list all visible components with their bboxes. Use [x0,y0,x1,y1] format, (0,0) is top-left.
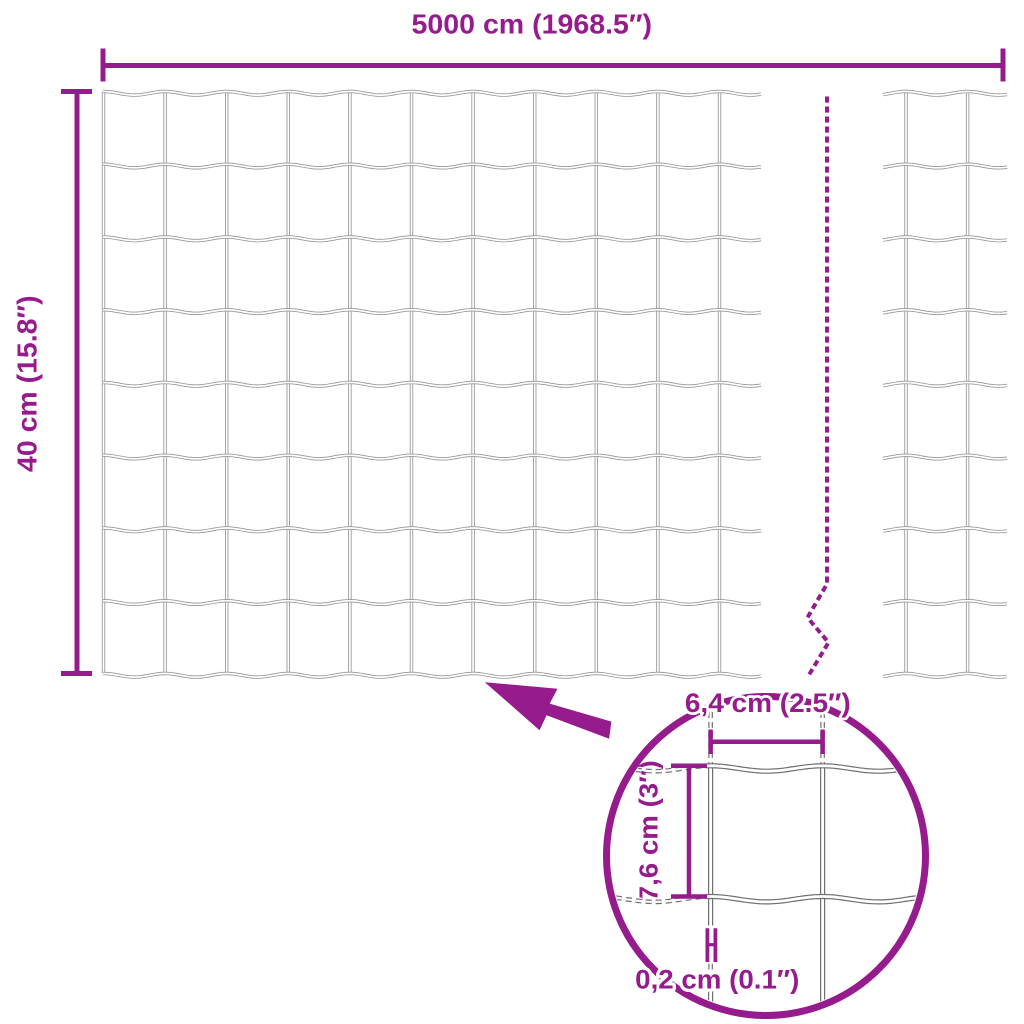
svg-text:40 cm (15.8″): 40 cm (15.8″) [11,295,42,472]
svg-text:7,6 cm (3″): 7,6 cm (3″) [636,760,664,901]
svg-text:5000 cm (1968.5″): 5000 cm (1968.5″) [412,8,653,39]
svg-text:0,2 cm (0.1″): 0,2 cm (0.1″) [635,964,799,994]
svg-text:6,4 cm (2.5″): 6,4 cm (2.5″) [685,688,851,718]
